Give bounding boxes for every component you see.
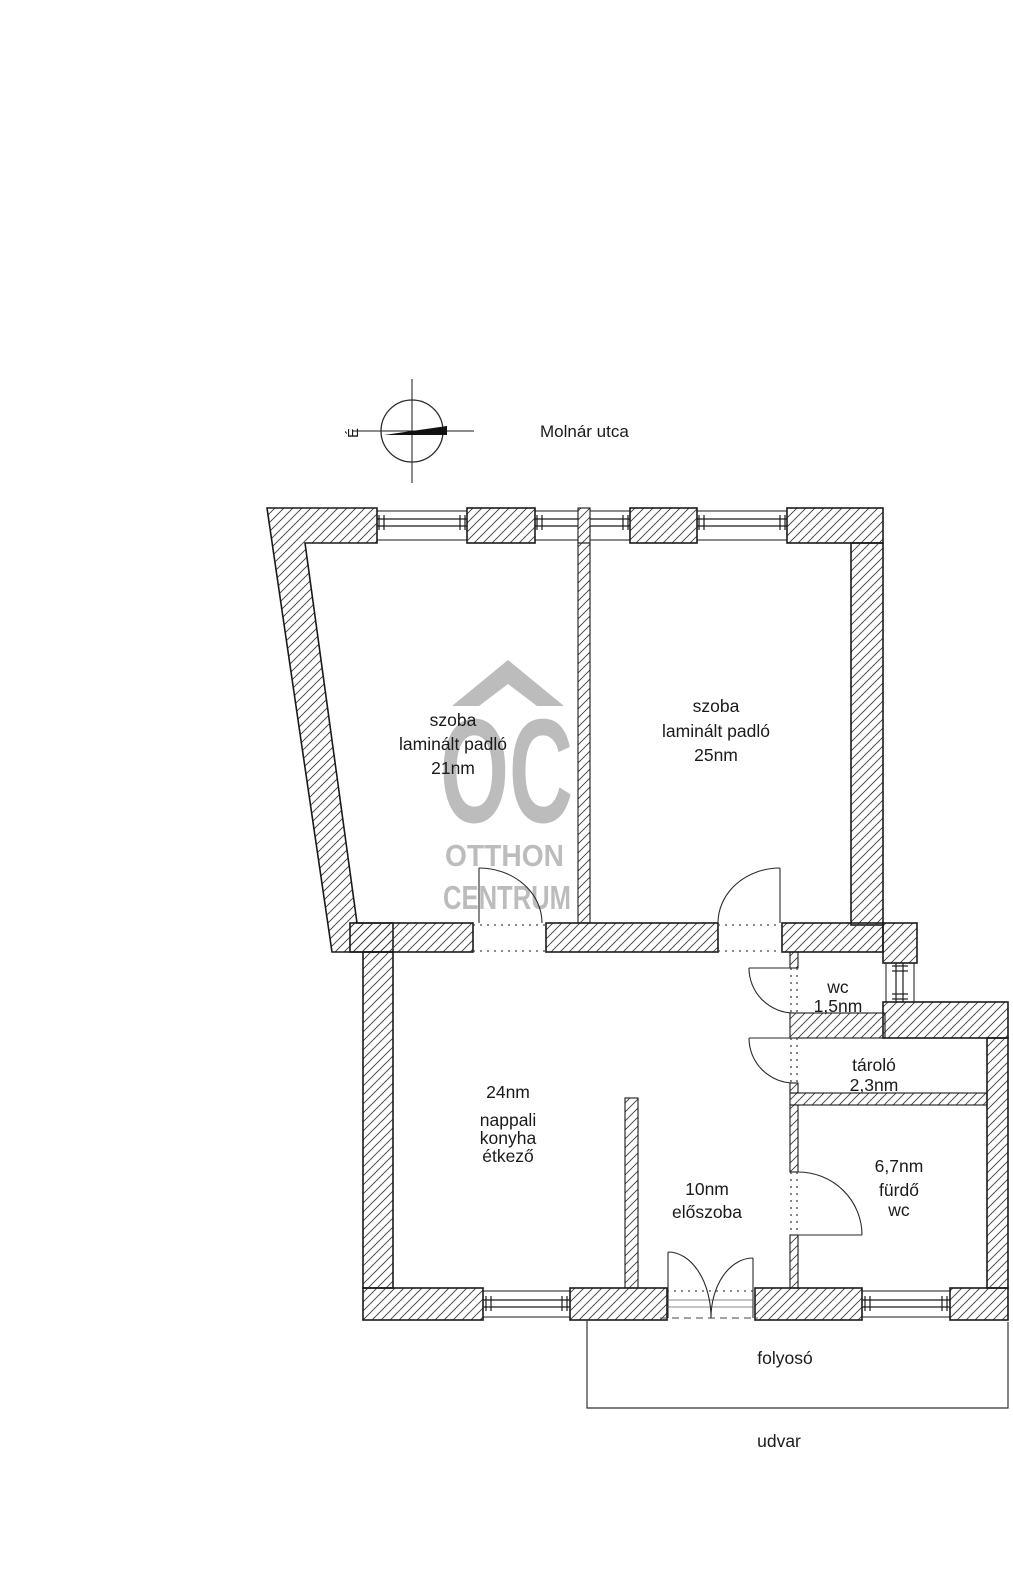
wall-top-pier2: [630, 508, 697, 543]
bedroom-left-floor: laminált padló: [399, 734, 507, 754]
corridor-label: folyosó: [757, 1348, 812, 1368]
north-label: É: [345, 428, 362, 438]
wall-bath-left-top: [790, 1105, 798, 1172]
floor-plan-svg: OC OTTHON CENTRUM É Molnár utca: [0, 0, 1013, 1580]
storage-name: tároló: [852, 1055, 896, 1075]
living-name2: konyha: [480, 1128, 537, 1148]
wall-bottom-right-corner: [950, 1288, 1008, 1320]
bedroom-left-area: 21nm: [431, 758, 475, 778]
bedroom-right-name: szoba: [693, 696, 740, 716]
wall-step-out: [883, 1002, 1008, 1038]
wall-bedroom-partition: [578, 543, 590, 923]
logo-brand-line1: OTTHON: [445, 838, 564, 873]
wall-wc-left-top: [790, 952, 798, 968]
wall-bottom-left-corner: [363, 1288, 483, 1320]
hallway-name: előszoba: [672, 1202, 742, 1222]
living-area: 24nm: [486, 1082, 530, 1102]
wall-living-hall-partition: [625, 1098, 638, 1288]
bathroom-area: 6,7nm: [875, 1156, 924, 1176]
wall-bottom-pier1: [570, 1288, 667, 1320]
floorplan-page: OC OTTHON CENTRUM É Molnár utca: [0, 0, 1013, 1580]
wall-left-living: [363, 952, 393, 1288]
living-name3: étkező: [482, 1146, 534, 1166]
hallway-area: 10nm: [685, 1179, 729, 1199]
wall-wc-window-top: [883, 923, 917, 963]
wall-middle-center: [546, 923, 718, 952]
storage-area: 2,3nm: [850, 1075, 899, 1095]
wc-area: 1,5nm: [814, 996, 863, 1016]
wall-middle-right: [782, 923, 883, 952]
bedroom-right-area: 25nm: [694, 745, 738, 765]
bedroom-right-floor: laminált padló: [662, 721, 770, 741]
bedroom-left-name: szoba: [430, 710, 477, 730]
wall-top-pier1: [467, 508, 535, 543]
wc-name: wc: [826, 977, 849, 997]
wall-middle-left: [350, 923, 473, 952]
wall-top-right-corner: [787, 508, 883, 543]
living-name1: nappali: [480, 1110, 536, 1130]
logo-brand-line2: CENTRUM: [443, 879, 571, 916]
wall-top-partition-stub: [578, 508, 590, 543]
wall-storage-left-stub: [790, 1083, 798, 1093]
street-label: Molnár utca: [540, 422, 629, 441]
wall-bath-left-bottom: [790, 1235, 798, 1288]
wall-right-bedroom: [851, 543, 883, 925]
courtyard-label: udvar: [757, 1431, 801, 1451]
wall-right-lower: [987, 1038, 1008, 1288]
wall-bottom-pier2: [755, 1288, 862, 1320]
bathroom-name2: wc: [887, 1200, 910, 1220]
bathroom-name1: fürdő: [879, 1180, 919, 1200]
wall-wc-storage: [790, 1013, 885, 1038]
